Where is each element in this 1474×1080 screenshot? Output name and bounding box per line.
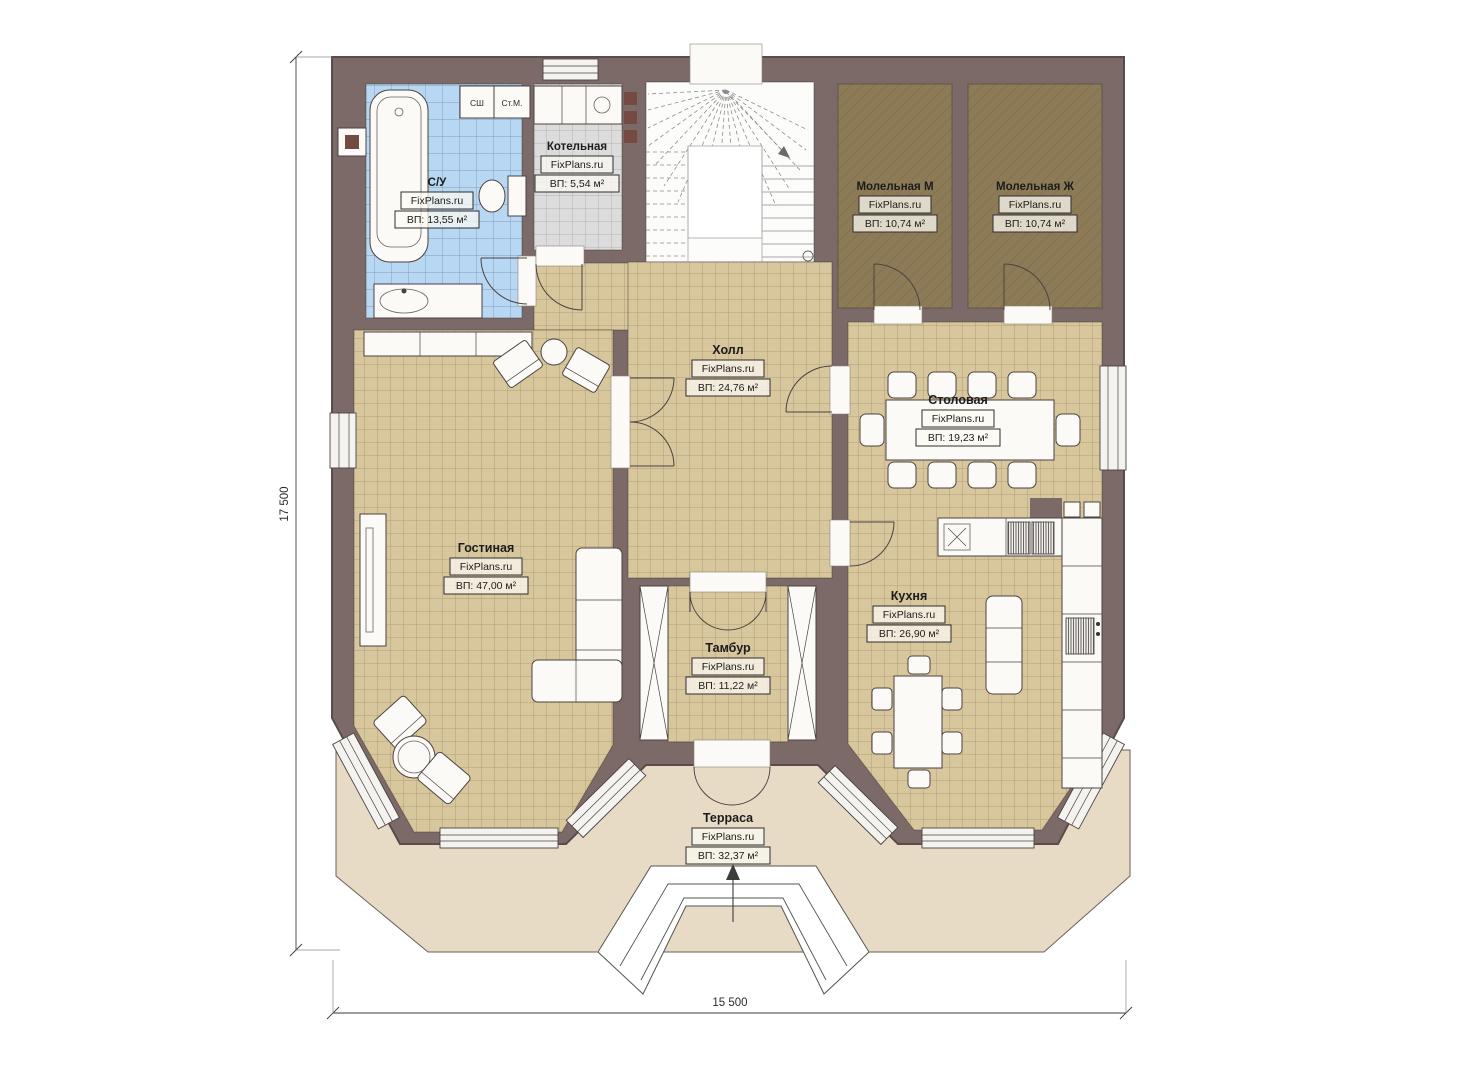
kitchen-appliance-box-1 [1064,502,1080,517]
kitchen-oven [1066,618,1094,654]
kitchen-chair [872,732,892,754]
dimension-height-label: 17 500 [279,486,291,521]
kitchen-table [894,676,942,768]
door-opening-hall-dining [830,366,850,414]
floor-plan: СШ Ст.М. [0,0,1474,1080]
window-bay-kitchen-bottom [922,828,1034,848]
door-opening-living-hall [611,376,630,468]
room-label-prayer-f: Молельная Ж FixPlans.ru ВП: 10,74 м² [993,181,1077,232]
door-opening-boiler [536,246,584,266]
room-area: ВП: 11,22 м² [698,680,758,692]
opening-top-stairs [690,44,762,84]
room-label-prayer-m: Молельная М FixPlans.ru ВП: 10,74 м² [853,181,937,232]
room-name: Холл [712,343,743,357]
dining-chair-end [860,414,884,446]
boiler-equipment-2 [624,111,637,124]
dining-chair [1008,462,1036,488]
window-top-boiler [543,59,598,80]
kitchen-appliance-box-2 [1084,502,1100,517]
room-name: Столовая [928,393,988,407]
room-name: Гостиная [458,541,515,555]
room-name: Терраса [703,811,754,825]
toilet-tank [508,176,526,216]
flue-duct-icon [345,135,359,149]
brand-label: FixPlans.ru [1009,199,1062,211]
sofa-chaise-section [532,660,622,702]
dining-chair [1008,372,1036,398]
door-opening-prayer-m [874,306,922,324]
boiler-equipment-1 [624,92,637,105]
room-name: Молельная М [856,181,933,193]
room-area: ВП: 47,00 м² [456,580,517,592]
brand-label: FixPlans.ru [460,561,513,573]
dining-chair [888,372,916,398]
door-opening-vestibule-terrace [694,740,770,767]
door-opening-kitchen [830,520,850,566]
brand-label: FixPlans.ru [551,159,604,171]
room-area: ВП: 26,90 м² [879,628,940,640]
room-name: С/У [428,177,448,189]
kitchen-island [986,596,1022,694]
room-area: ВП: 13,55 м² [407,214,468,226]
room-area: ВП: 32,37 м² [698,850,759,862]
window-right-dining [1100,366,1126,470]
kitchen-chair [908,656,930,674]
room-area: ВП: 24,76 м² [698,382,759,394]
kitchen-oven-knob-icon [1096,622,1100,626]
room-name: Молельная Ж [996,181,1074,193]
tv-screen [366,528,373,632]
bathroom-faucet-icon [402,289,407,294]
window-bay-living-bottom [440,828,558,848]
brand-label: FixPlans.ru [869,199,922,211]
room-name: Кухня [891,589,928,603]
boiler-equipment-3 [624,130,637,143]
kitchen-chair [942,732,962,754]
kitchen-chair [908,770,930,788]
boiler-sink [594,97,610,113]
door-opening-hall-vestibule [690,572,766,592]
hall-floor [628,262,832,578]
toilet-bowl [479,180,505,212]
room-area: ВП: 10,74 м² [865,218,926,230]
brand-label: FixPlans.ru [411,195,464,207]
room-area: ВП: 10,74 м² [1005,218,1066,230]
stair-void [688,146,762,238]
room-name: Тамбур [705,641,751,655]
room-name: Котельная [547,141,607,153]
living-side-table [541,339,567,365]
room-area: ВП: 5,54 м² [550,178,605,190]
drying-cabinet-label: СШ [470,98,484,108]
room-area: ВП: 19,23 м² [928,432,989,444]
brand-label: FixPlans.ru [702,661,755,673]
washing-machine-label: Ст.М. [502,98,523,108]
window-left-living [330,413,356,468]
room-label-boiler: Котельная FixPlans.ru ВП: 5,54 м² [535,141,619,192]
dimension-width-label: 15 500 [712,997,747,1009]
bathtub-drain-icon [395,108,403,116]
dining-chair [968,462,996,488]
kitchen-stove-left [1008,522,1030,554]
door-opening-bathroom [518,256,536,306]
dining-chair [888,462,916,488]
kitchen-stove-right [1032,522,1054,554]
floor-plan-page: СШ Ст.М. [0,0,1474,1080]
room-label-dining: Столовая FixPlans.ru ВП: 19,23 м² [916,393,1000,446]
kitchen-chair [872,688,892,710]
door-opening-prayer-f [1004,306,1052,324]
brand-label: FixPlans.ru [883,609,936,621]
brand-label: FixPlans.ru [932,413,985,425]
dining-chair [928,462,956,488]
kitchen-chair [942,688,962,710]
dining-chair-end [1056,414,1080,446]
brand-label: FixPlans.ru [702,831,755,843]
kitchen-oven-knob-icon [1096,632,1100,636]
brand-label: FixPlans.ru [702,363,755,375]
